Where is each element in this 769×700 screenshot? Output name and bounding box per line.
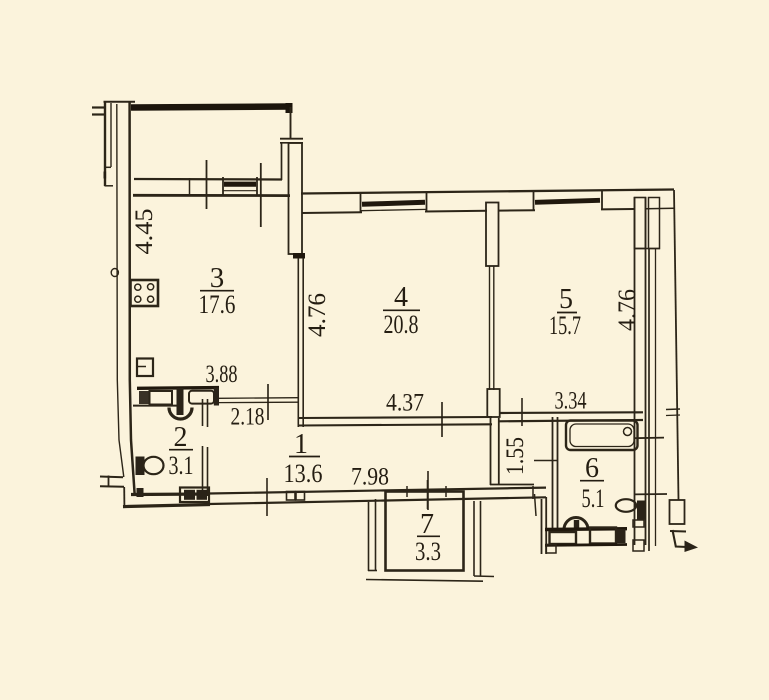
svg-text:4: 4 <box>394 282 408 313</box>
svg-text:7: 7 <box>420 509 434 540</box>
svg-text:20.8: 20.8 <box>384 310 419 339</box>
svg-text:1.55: 1.55 <box>500 437 529 475</box>
svg-text:4.37: 4.37 <box>386 388 424 417</box>
svg-text:17.6: 17.6 <box>199 290 236 319</box>
svg-text:13.6: 13.6 <box>284 459 323 488</box>
svg-text:3.34: 3.34 <box>555 386 587 415</box>
svg-text:4.45: 4.45 <box>129 209 158 255</box>
svg-text:4.76: 4.76 <box>302 293 331 337</box>
svg-text:6: 6 <box>585 453 599 484</box>
svg-text:2.18: 2.18 <box>231 402 265 431</box>
svg-text:3.3: 3.3 <box>415 537 441 566</box>
svg-text:3.88: 3.88 <box>206 359 238 388</box>
svg-text:5.1: 5.1 <box>582 484 605 513</box>
svg-text:7.98: 7.98 <box>351 462 389 491</box>
svg-text:1: 1 <box>294 429 308 460</box>
svg-text:2: 2 <box>174 422 188 453</box>
svg-text:3.1: 3.1 <box>169 451 194 480</box>
svg-text:4.76: 4.76 <box>612 289 641 331</box>
svg-text:15.7: 15.7 <box>549 311 581 340</box>
